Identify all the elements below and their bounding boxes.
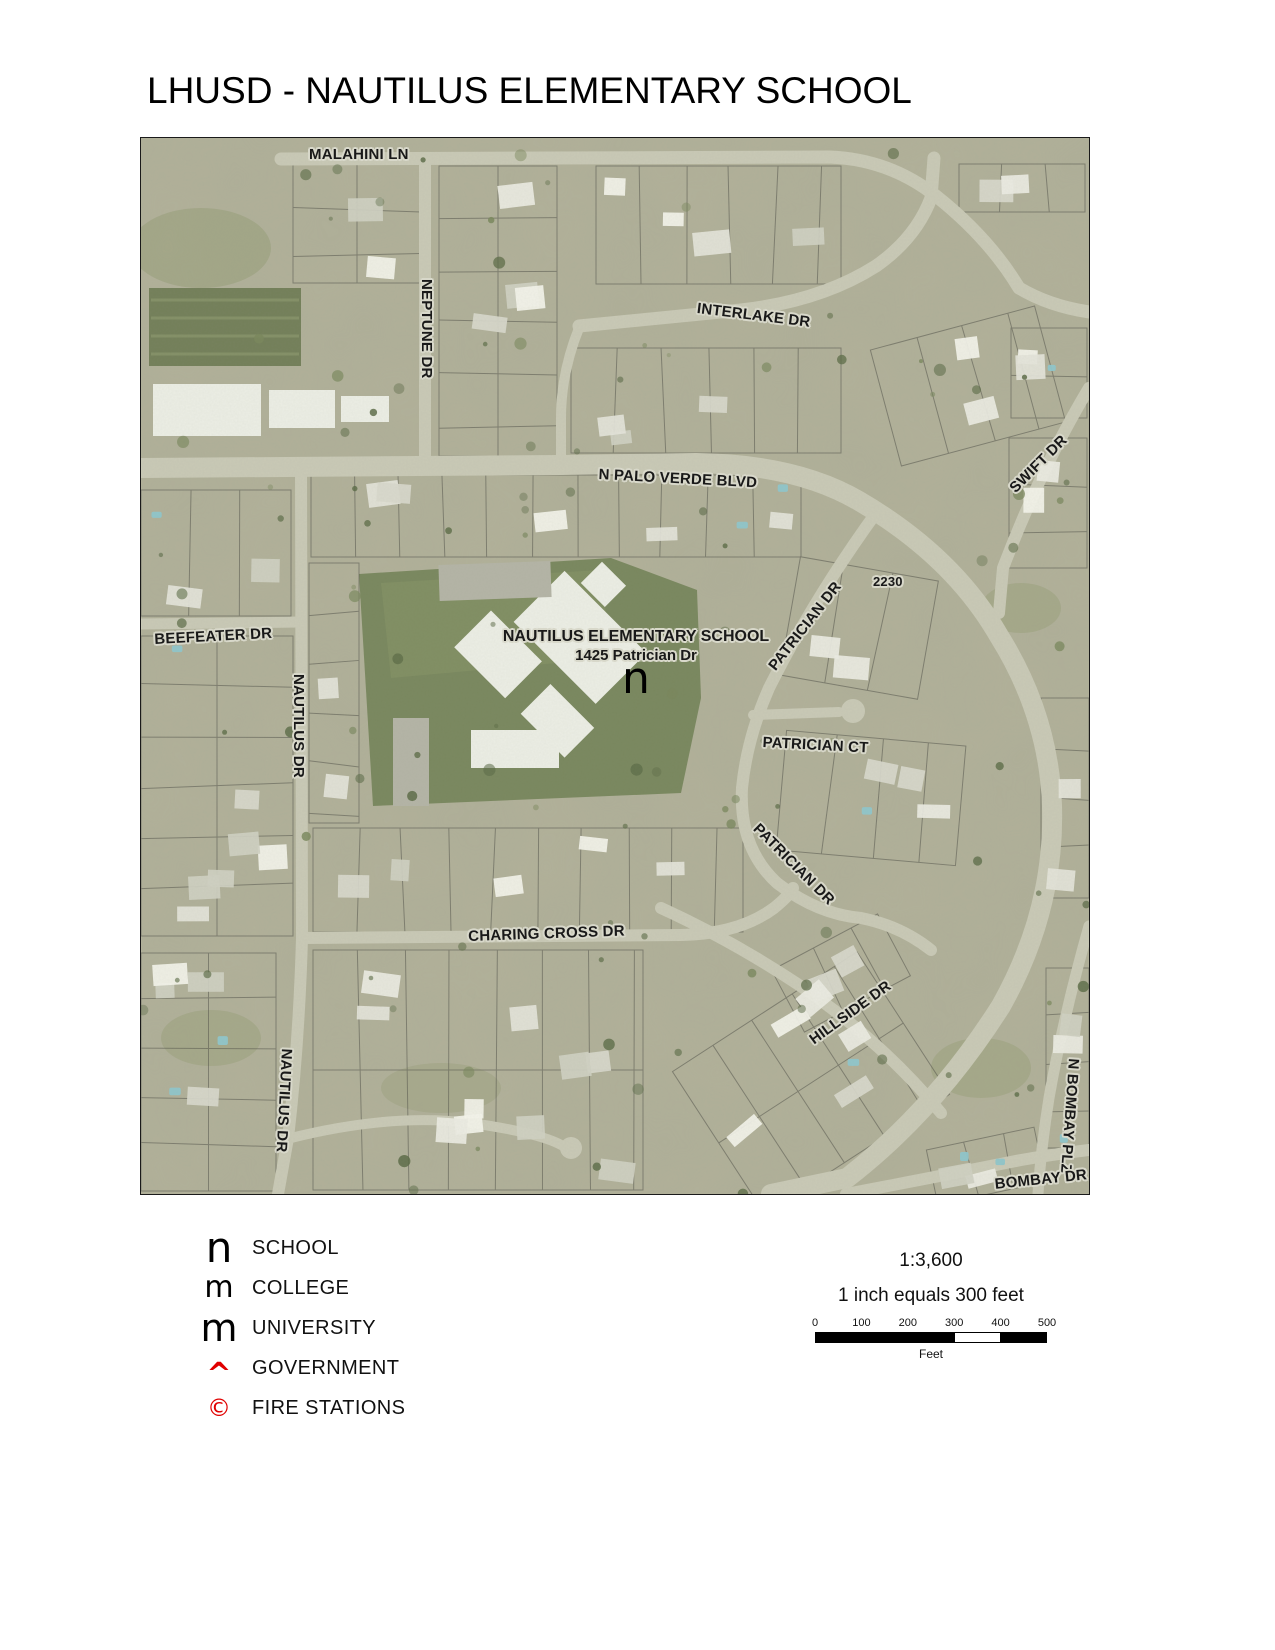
scale-tick-100: 100 [852,1317,870,1329]
map-label-malahini-ln-0: MALAHINI LN [309,147,409,162]
legend-symbol-school: n [196,1227,242,1269]
scale-ticks: 0100200300400500 [815,1317,1047,1330]
map-frame: MALAHINI LNNEPTUNE DRINTERLAKE DRN PALO … [140,137,1090,1195]
scale-block: 1:3,600 1 inch equals 300 feet 010020030… [815,1250,1047,1361]
page: LHUSD - NAUTILUS ELEMENTARY SCHOOL [0,0,1275,1650]
legend-symbol-university: m [196,1309,242,1347]
scale-bar-segment-0 [816,1333,861,1342]
legend-label-fire-stations: FIRE STATIONS [252,1397,405,1420]
scale-bar-segment-3 [954,1333,1000,1342]
legend-label-government: GOVERNMENT [252,1357,399,1380]
scale-bar-segment-2 [907,1333,953,1342]
scale-unit-label: Feet [815,1347,1047,1361]
school-callout: NAUTILUS ELEMENTARY SCHOOL 1425 Patricia… [496,628,776,697]
legend-row-university: mUNIVERSITY [196,1308,405,1348]
legend-row-school: nSCHOOL [196,1228,405,1268]
scale-tick-400: 400 [991,1317,1009,1329]
legend-label-university: UNIVERSITY [252,1317,376,1340]
map-label-2230-5: 2230 [873,575,903,588]
map-title: LHUSD - NAUTILUS ELEMENTARY SCHOOL [147,70,912,112]
scale-tick-300: 300 [945,1317,963,1329]
scale-equivalence: 1 inch equals 300 feet [815,1285,1047,1307]
legend-symbol-government: ^ [196,1360,242,1390]
legend-symbol-fire-stations: © [196,1396,242,1420]
legend-row-fire-stations: ©FIRE STATIONS [196,1388,405,1428]
scale-tick-500: 500 [1038,1317,1056,1329]
legend-label-school: SCHOOL [252,1237,339,1260]
scale-bar [815,1332,1047,1343]
scale-tick-200: 200 [899,1317,917,1329]
legend-symbol-college: m [196,1273,242,1303]
scale-bar-segment-1 [861,1333,907,1342]
map-label-nautilus-dr-9: NAUTILUS DR [291,674,306,778]
legend-row-government: ^GOVERNMENT [196,1348,405,1388]
school-name-label: NAUTILUS ELEMENTARY SCHOOL [496,628,776,646]
scale-tick-0: 0 [812,1317,818,1329]
scale-ratio: 1:3,600 [815,1250,1047,1272]
map-label-neptune-dr-1: NEPTUNE DR [419,279,434,379]
school-symbol: n [496,660,776,697]
legend-row-college: mCOLLEGE [196,1268,405,1308]
legend: nSCHOOLmCOLLEGEmUNIVERSITY^GOVERNMENT©FI… [196,1228,405,1428]
scale-bar-segment-4 [1000,1333,1046,1342]
legend-label-college: COLLEGE [252,1277,349,1300]
